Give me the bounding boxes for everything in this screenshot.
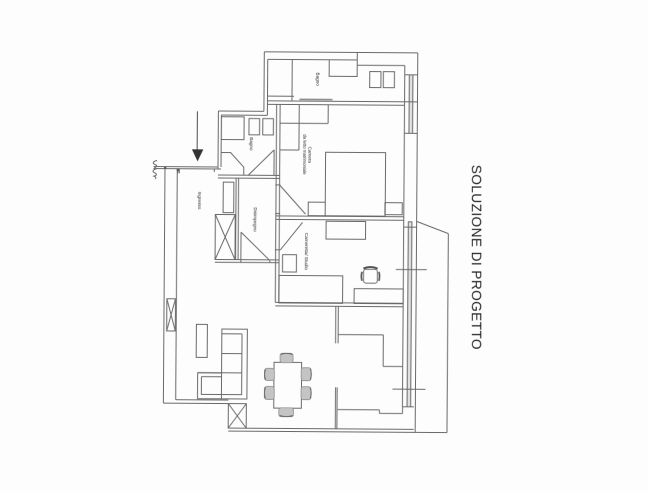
svg-text:Cameretta/ Studio: Cameretta/ Studio [304, 233, 309, 271]
svg-text:Ingresso: Ingresso [197, 192, 202, 210]
svg-text:Bagno: Bagno [249, 137, 254, 151]
svg-text:da letto matrimoniale: da letto matrimoniale [302, 134, 307, 175]
svg-text:SOLUZIONE DI PROGETTO: SOLUZIONE DI PROGETTO [469, 165, 484, 350]
svg-text:Bagno: Bagno [315, 72, 320, 86]
svg-text:Disimpegno: Disimpegno [253, 207, 258, 232]
